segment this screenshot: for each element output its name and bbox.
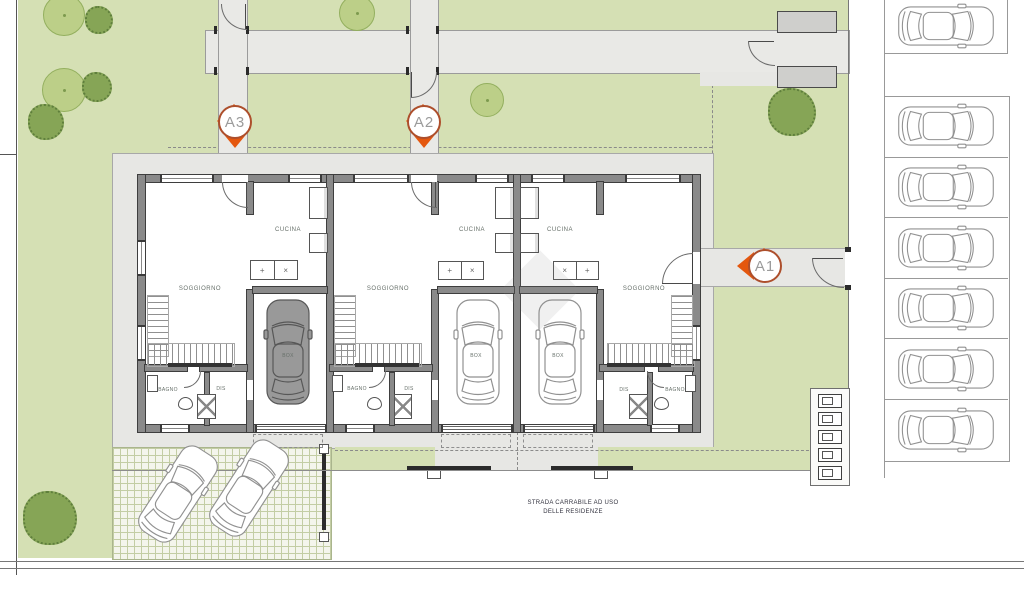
- toilet: [367, 397, 382, 410]
- bush: [82, 72, 112, 102]
- driveway-marking: [523, 434, 593, 448]
- room-label-bagno-a3: BAGNO: [158, 387, 178, 393]
- wall: [247, 290, 253, 432]
- sink-appliance-row: +×: [250, 260, 298, 280]
- room-label-soggiorno-a2: SOGGIORNO: [367, 286, 409, 292]
- parking-space-line: [884, 278, 1008, 279]
- gate-door-leaf: [411, 72, 412, 97]
- parking-space-line: [884, 157, 1008, 158]
- road-label-line2: DELLE RESIDENZE: [528, 508, 619, 517]
- appliance-icon: ×: [275, 261, 298, 279]
- room-label-soggiorno-a3: SOGGIORNO: [179, 286, 221, 292]
- door-arc: [184, 371, 201, 388]
- stairs-cut-line: [607, 363, 671, 367]
- driveway-marking: [441, 434, 511, 448]
- marker-a1: A1: [748, 249, 782, 283]
- wall: [138, 175, 145, 432]
- room-label-bagno-a1: BAGNO: [665, 387, 685, 393]
- parking-space-line: [1007, 0, 1008, 53]
- kitchen-counter: [309, 233, 328, 253]
- entry-door-gap: [693, 252, 700, 284]
- road-edge: [0, 561, 1024, 562]
- garage-door: [523, 425, 595, 432]
- window: [625, 175, 681, 182]
- garden-boundary-dashed: [168, 147, 712, 148]
- room-label-cucina-a2: CUCINA: [459, 227, 485, 233]
- marker-a3: A3: [218, 105, 252, 139]
- car-icon: [896, 164, 996, 210]
- room-label-bagno-a2: BAGNO: [347, 386, 367, 392]
- window: [531, 175, 565, 182]
- gate-jamb: [246, 67, 249, 75]
- wall: [138, 425, 700, 432]
- road-label-line1: STRADA CARRABILE AD USO: [528, 499, 619, 508]
- gate-jamb: [845, 247, 851, 252]
- wall: [693, 175, 700, 432]
- car-icon: [453, 297, 503, 407]
- sink-appliance-row: +×: [438, 261, 484, 280]
- gate-jamb: [845, 285, 851, 290]
- meter-box: [818, 412, 842, 426]
- window: [160, 425, 190, 432]
- wall: [597, 290, 603, 432]
- gate-wall: [778, 67, 836, 87]
- fence-post-bar: [322, 452, 326, 530]
- gate-jamb: [214, 26, 217, 34]
- car-icon: [263, 297, 313, 407]
- meter-box: [818, 394, 842, 408]
- road-edge: [112, 470, 848, 471]
- site-plan: +× +× ×+: [0, 0, 1024, 590]
- gate-court: [700, 72, 778, 86]
- wall: [597, 182, 603, 214]
- room-label-soggiorno-a1: SOGGIORNO: [623, 286, 665, 292]
- meter-box: [818, 430, 842, 444]
- parking-space-line: [884, 338, 1008, 339]
- car-icon: [896, 407, 996, 453]
- road-edge: [0, 568, 1024, 569]
- gate-door-leaf: [245, 4, 246, 29]
- entry-door-arc: [411, 182, 437, 208]
- room-label-box-a3: BOX: [282, 353, 293, 359]
- room-label-cucina-a1: CUCINA: [547, 227, 573, 233]
- bush: [28, 104, 64, 140]
- window: [693, 325, 700, 361]
- kitchen-counter: [520, 187, 539, 219]
- gate-jamb: [406, 26, 409, 34]
- stairs-cut-line: [168, 363, 232, 367]
- gate-jamb: [214, 67, 217, 75]
- tree: [470, 83, 504, 117]
- sink-icon: +: [577, 262, 599, 279]
- fence-post: [319, 532, 329, 542]
- kitchen-counter: [495, 187, 514, 219]
- toilet: [178, 397, 193, 410]
- building: +× +× ×+: [138, 175, 700, 432]
- car-icon: [896, 225, 996, 271]
- bush: [85, 6, 113, 34]
- shower: [629, 394, 648, 419]
- marker-a2: A2: [407, 105, 441, 139]
- gate-wall: [778, 12, 836, 32]
- room-label-dis-a3: DIS: [216, 386, 225, 392]
- appliance-icon: ×: [462, 262, 484, 279]
- fence-gate-gap: [845, 251, 852, 286]
- window: [650, 425, 680, 432]
- boundary-line: [0, 154, 16, 155]
- entry-door-arc: [222, 182, 248, 208]
- entry-door-arc: [662, 253, 693, 284]
- stairs-cut-line: [355, 363, 419, 367]
- entry-door-leaf: [662, 283, 692, 284]
- gate-jamb: [436, 26, 439, 34]
- road-boundary-dashed: [335, 450, 829, 451]
- room-label-cucina-a3: CUCINA: [275, 227, 301, 233]
- sink-icon: +: [251, 261, 275, 279]
- door-arc: [369, 371, 386, 388]
- car-icon: [896, 3, 996, 49]
- meter-box: [818, 466, 842, 480]
- car-icon: [896, 103, 996, 149]
- parking-space-line: [884, 399, 1008, 400]
- washbasin: [332, 375, 343, 392]
- entry-door-gap: [411, 175, 437, 182]
- parking-space-line: [884, 217, 1008, 218]
- gate-post: [594, 470, 608, 479]
- toilet: [654, 397, 669, 410]
- door-gap: [247, 380, 253, 400]
- window: [138, 240, 145, 276]
- entry-door-gap: [222, 175, 248, 182]
- window: [353, 175, 409, 182]
- car-icon: [896, 346, 996, 392]
- door-gap: [432, 380, 438, 400]
- wall: [432, 290, 438, 432]
- gate-post: [427, 470, 441, 479]
- bush: [768, 88, 816, 136]
- sink-icon: +: [439, 262, 462, 279]
- entry-door-leaf: [246, 182, 247, 207]
- kitchen-counter: [520, 233, 539, 253]
- room-label-dis-a1: DIS: [619, 387, 628, 393]
- window: [138, 325, 145, 361]
- driveway-divider-dashed: [517, 432, 518, 470]
- wall: [253, 287, 327, 293]
- gate-jamb: [406, 67, 409, 75]
- kitchen-counter: [309, 187, 328, 219]
- door-gap: [597, 380, 603, 400]
- bush: [23, 491, 77, 545]
- entry-door-leaf: [435, 182, 436, 207]
- parking-space-line: [884, 53, 1008, 54]
- road-label: STRADA CARRABILE AD USO DELLE RESIDENZE: [528, 499, 619, 516]
- garage-door: [441, 425, 513, 432]
- room-label-box-a1: BOX: [552, 353, 563, 359]
- kitchen-counter: [495, 233, 514, 253]
- room-label-box-a2: BOX: [470, 353, 481, 359]
- window: [288, 175, 322, 182]
- garage-door: [255, 425, 327, 432]
- boundary-line: [16, 0, 17, 575]
- room-label-dis-a2: DIS: [404, 386, 413, 392]
- utility-meters: [810, 388, 850, 486]
- shower: [197, 394, 216, 419]
- window: [475, 175, 509, 182]
- meter-box: [818, 448, 842, 462]
- shower: [394, 394, 412, 419]
- window: [160, 175, 214, 182]
- car-icon: [896, 285, 996, 331]
- window: [345, 425, 375, 432]
- washbasin: [147, 375, 158, 392]
- washbasin: [685, 375, 696, 392]
